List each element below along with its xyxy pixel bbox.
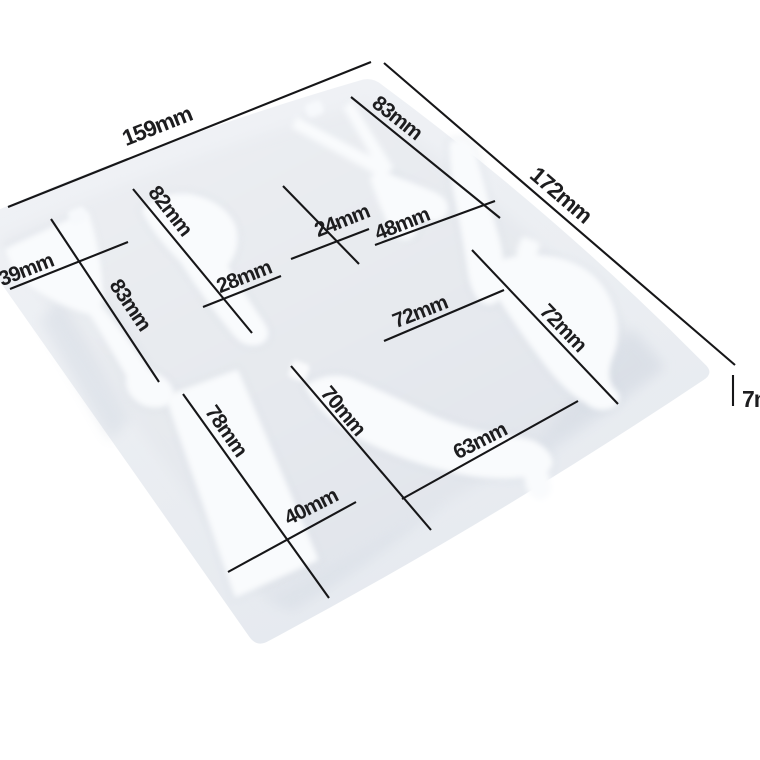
svg-text:7mm: 7mm [742,386,760,412]
